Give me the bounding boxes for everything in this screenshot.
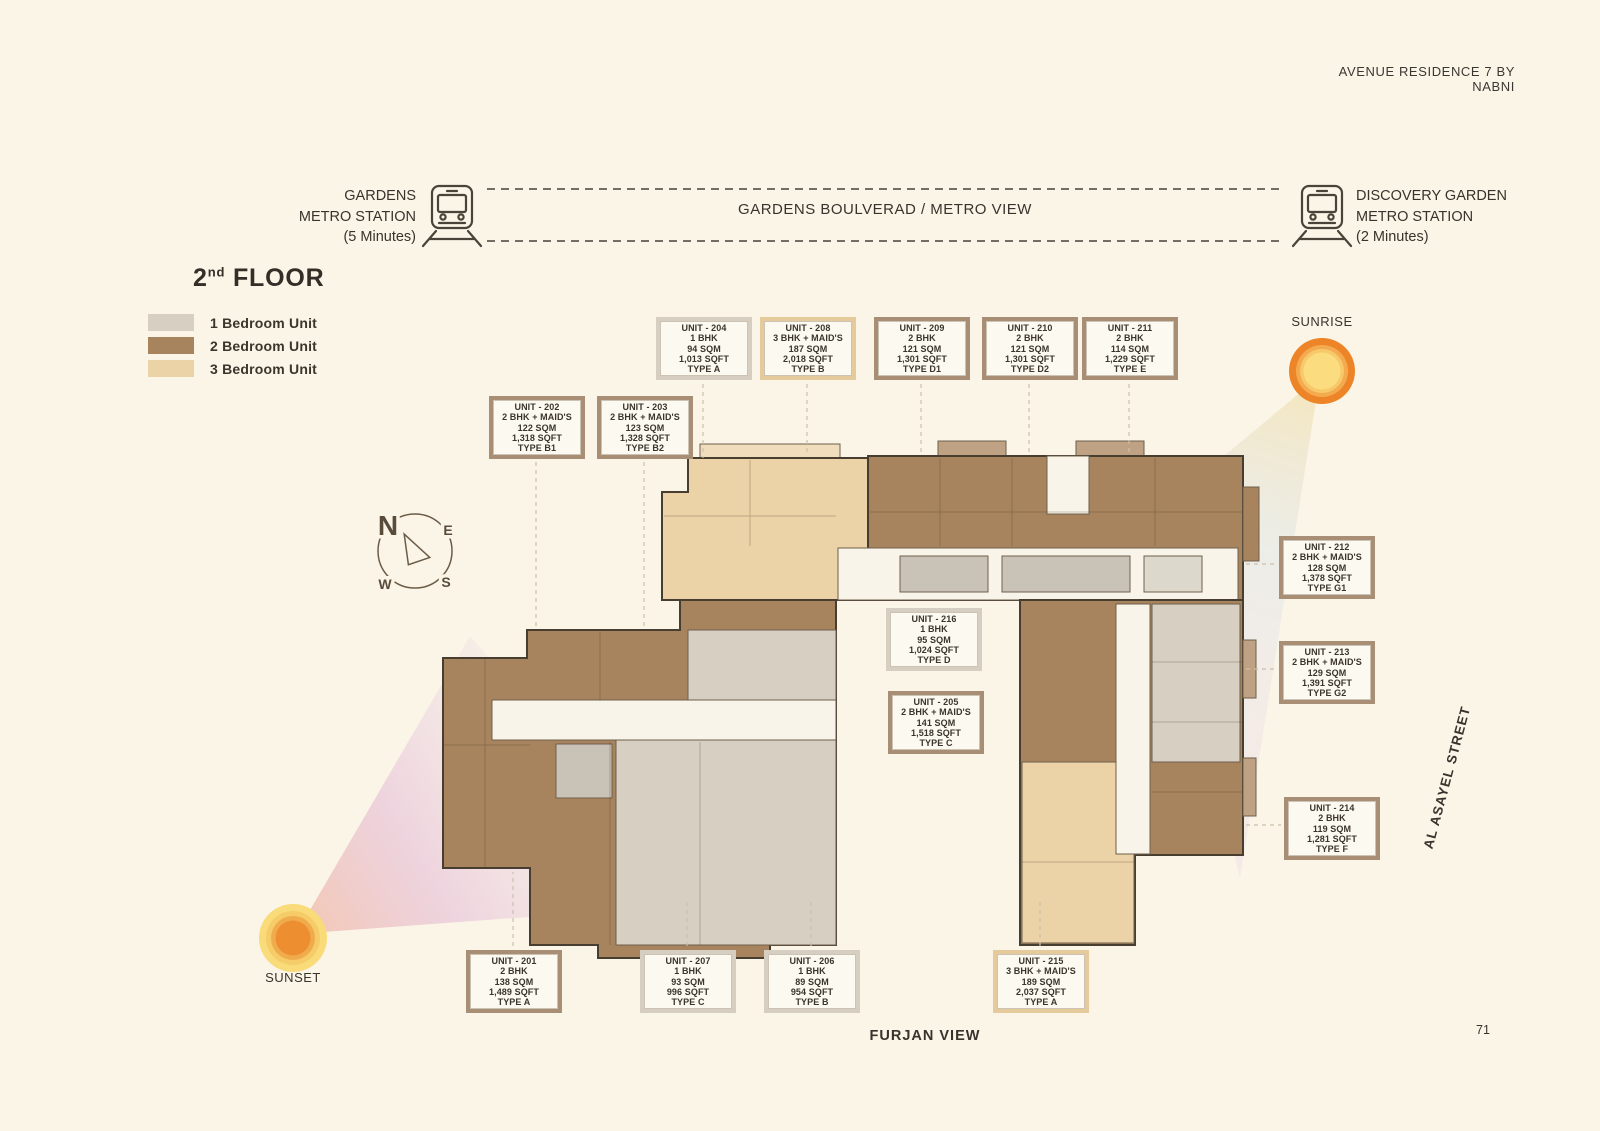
legend-item-3-bedroom: 3 Bedroom Unit [148,360,317,377]
unit-210-area_sqft: 1,301 SQFT [987,354,1073,364]
legend-label: 1 Bedroom Unit [210,315,317,331]
unit-209-title: UNIT - 209 [879,323,965,333]
unit-204-title: UNIT - 204 [661,323,747,333]
unit-214-bhk: 2 BHK [1289,813,1375,823]
unit-209-area_sqm: 121 SQM [879,344,965,354]
unit-205-title: UNIT - 205 [893,697,979,707]
legend-item-1-bedroom: 1 Bedroom Unit [148,314,317,331]
sunrise-label: SUNRISE [1272,314,1372,329]
compass-south: S [441,574,450,590]
unit-213-area_sqft: 1,391 SQFT [1284,678,1370,688]
legend-swatch [148,337,194,354]
unit-202-area_sqm: 122 SQM [494,423,580,433]
unit-206-type: TYPE B [769,997,855,1007]
unit-211-type: TYPE E [1087,364,1173,374]
unit-213-bhk: 2 BHK + MAID'S [1284,657,1370,667]
unit-212-title: UNIT - 212 [1284,542,1370,552]
legend-label: 2 Bedroom Unit [210,338,317,354]
unit-215-area_sqm: 189 SQM [998,977,1084,987]
metro-right-line3: (2 Minutes) [1356,227,1556,248]
unit-info-box-204: UNIT - 2041 BHK94 SQM1,013 SQFTTYPE A [656,317,752,380]
unit-211-bhk: 2 BHK [1087,333,1173,343]
unit-204-area_sqm: 94 SQM [661,344,747,354]
metro-left-line1: GARDENS [240,186,416,207]
unit-211-area_sqft: 1,229 SQFT [1087,354,1173,364]
metro-right-line1: DISCOVERY GARDEN [1356,186,1556,207]
unit-206-title: UNIT - 206 [769,956,855,966]
unit-info-box-215: UNIT - 2153 BHK + MAID'S189 SQM2,037 SQF… [993,950,1089,1013]
unit-202-area_sqft: 1,318 SQFT [494,433,580,443]
unit-210-title: UNIT - 210 [987,323,1073,333]
unit-210-area_sqm: 121 SQM [987,344,1073,354]
unit-info-box-213: UNIT - 2132 BHK + MAID'S129 SQM1,391 SQF… [1279,641,1375,704]
unit-215-type: TYPE A [998,997,1084,1007]
unit-202-bhk: 2 BHK + MAID'S [494,412,580,422]
unit-207-area_sqm: 93 SQM [645,977,731,987]
unit-216-area_sqft: 1,024 SQFT [891,645,977,655]
unit-216-bhk: 1 BHK [891,624,977,634]
unit-info-box-211: UNIT - 2112 BHK114 SQM1,229 SQFTTYPE E [1082,317,1178,380]
unit-info-box-202: UNIT - 2022 BHK + MAID'S122 SQM1,318 SQF… [489,396,585,459]
unit-205-type: TYPE C [893,738,979,748]
unit-211-area_sqm: 114 SQM [1087,344,1173,354]
unit-206-bhk: 1 BHK [769,966,855,976]
sunset-label: SUNSET [243,970,343,985]
unit-216-title: UNIT - 216 [891,614,977,624]
metro-left-line2: METRO STATION [240,207,416,228]
unit-info-box-208: UNIT - 2083 BHK + MAID'S187 SQM2,018 SQF… [760,317,856,380]
metro-station-left-label: GARDENS METRO STATION (5 Minutes) [240,186,416,248]
unit-212-type: TYPE G1 [1284,583,1370,593]
floor-ordinal: nd [208,265,225,280]
unit-212-area_sqft: 1,378 SQFT [1284,573,1370,583]
sunset-sun-icon [259,904,327,972]
unit-210-type: TYPE D2 [987,364,1073,374]
unit-203-type: TYPE B2 [602,443,688,453]
metro-corridor-label: GARDENS BOULVERAD / METRO VIEW [487,201,1283,218]
legend-swatch [148,360,194,377]
unit-206-area_sqft: 954 SQFT [769,987,855,997]
unit-212-area_sqm: 128 SQM [1284,563,1370,573]
unit-208-title: UNIT - 208 [765,323,851,333]
compass: N E S W [378,510,453,592]
unit-203-title: UNIT - 203 [602,402,688,412]
unit-214-type: TYPE F [1289,844,1375,854]
unit-209-type: TYPE D1 [879,364,965,374]
unit-212-bhk: 2 BHK + MAID'S [1284,552,1370,562]
unit-211-title: UNIT - 211 [1087,323,1173,333]
unit-info-box-201: UNIT - 2012 BHK138 SQM1,489 SQFTTYPE A [466,950,562,1013]
compass-east: E [443,522,452,538]
unit-209-bhk: 2 BHK [879,333,965,343]
unit-203-bhk: 2 BHK + MAID'S [602,412,688,422]
unit-214-area_sqm: 119 SQM [1289,824,1375,834]
page-title: AVENUE RESIDENCE 7 BY NABNI [1305,64,1515,94]
unit-201-title: UNIT - 201 [471,956,557,966]
unit-213-area_sqm: 129 SQM [1284,668,1370,678]
building-footprint [443,441,1259,958]
unit-info-box-207: UNIT - 2071 BHK93 SQM996 SQFTTYPE C [640,950,736,1013]
unit-207-type: TYPE C [645,997,731,1007]
unit-208-type: TYPE B [765,364,851,374]
legend-label: 3 Bedroom Unit [210,361,317,377]
floor-plan-page: N E S W AVENUE RESIDENCE 7 BY NABNI GARD… [0,0,1600,1131]
unit-203-area_sqm: 123 SQM [602,423,688,433]
metro-right-line2: METRO STATION [1356,207,1556,228]
unit-201-area_sqft: 1,489 SQFT [471,987,557,997]
unit-213-title: UNIT - 213 [1284,647,1370,657]
unit-info-box-209: UNIT - 2092 BHK121 SQM1,301 SQFTTYPE D1 [874,317,970,380]
unit-216-type: TYPE D [891,655,977,665]
wing-top-3br [662,458,868,600]
unit-info-box-214: UNIT - 2142 BHK119 SQM1,281 SQFTTYPE F [1284,797,1380,860]
unit-201-area_sqm: 138 SQM [471,977,557,987]
floor-number: 2 [193,264,208,292]
metro-train-icon-left [423,186,481,246]
page-number: 71 [1476,1023,1490,1037]
unit-201-type: TYPE A [471,997,557,1007]
unit-204-bhk: 1 BHK [661,333,747,343]
unit-210-bhk: 2 BHK [987,333,1073,343]
unit-207-title: UNIT - 207 [645,956,731,966]
legend-swatch [148,314,194,331]
unit-215-bhk: 3 BHK + MAID'S [998,966,1084,976]
unit-205-area_sqft: 1,518 SQFT [893,728,979,738]
unit-201-bhk: 2 BHK [471,966,557,976]
unit-info-box-203: UNIT - 2032 BHK + MAID'S123 SQM1,328 SQF… [597,396,693,459]
unit-205-bhk: 2 BHK + MAID'S [893,707,979,717]
unit-206-area_sqm: 89 SQM [769,977,855,987]
unit-214-area_sqft: 1,281 SQFT [1289,834,1375,844]
unit-207-bhk: 1 BHK [645,966,731,976]
unit-207-area_sqft: 996 SQFT [645,987,731,997]
unit-203-area_sqft: 1,328 SQFT [602,433,688,443]
unit-209-area_sqft: 1,301 SQFT [879,354,965,364]
unit-info-box-206: UNIT - 2061 BHK89 SQM954 SQFTTYPE B [764,950,860,1013]
unit-208-area_sqm: 187 SQM [765,344,851,354]
unit-208-area_sqft: 2,018 SQFT [765,354,851,364]
unit-info-box-216: UNIT - 2161 BHK95 SQM1,024 SQFTTYPE D [886,608,982,671]
unit-204-area_sqft: 1,013 SQFT [661,354,747,364]
compass-needle [404,532,430,565]
unit-202-title: UNIT - 202 [494,402,580,412]
floor-title: 2nd FLOOR [193,264,324,293]
floor-word: FLOOR [225,264,324,292]
unit-info-box-210: UNIT - 2102 BHK121 SQM1,301 SQFTTYPE D2 [982,317,1078,380]
sunrise-sun-icon [1289,338,1355,404]
unit-213-type: TYPE G2 [1284,688,1370,698]
unit-205-area_sqm: 141 SQM [893,718,979,728]
unit-info-box-205: UNIT - 2052 BHK + MAID'S141 SQM1,518 SQF… [888,691,984,754]
legend-item-2-bedroom: 2 Bedroom Unit [148,337,317,354]
compass-west: W [378,576,392,592]
metro-station-right-label: DISCOVERY GARDEN METRO STATION (2 Minute… [1356,186,1556,248]
unit-214-title: UNIT - 214 [1289,803,1375,813]
unit-215-area_sqft: 2,037 SQFT [998,987,1084,997]
unit-202-type: TYPE B1 [494,443,580,453]
street-label-furjan-view: FURJAN VIEW [825,1028,1025,1044]
metro-train-icon-right [1293,186,1351,246]
legend: 1 Bedroom Unit2 Bedroom Unit3 Bedroom Un… [148,314,317,383]
compass-north: N [378,510,398,541]
unit-204-type: TYPE A [661,364,747,374]
unit-208-bhk: 3 BHK + MAID'S [765,333,851,343]
unit-info-box-212: UNIT - 2122 BHK + MAID'S128 SQM1,378 SQF… [1279,536,1375,599]
unit-216-area_sqm: 95 SQM [891,635,977,645]
metro-left-line3: (5 Minutes) [240,227,416,248]
unit-215-title: UNIT - 215 [998,956,1084,966]
